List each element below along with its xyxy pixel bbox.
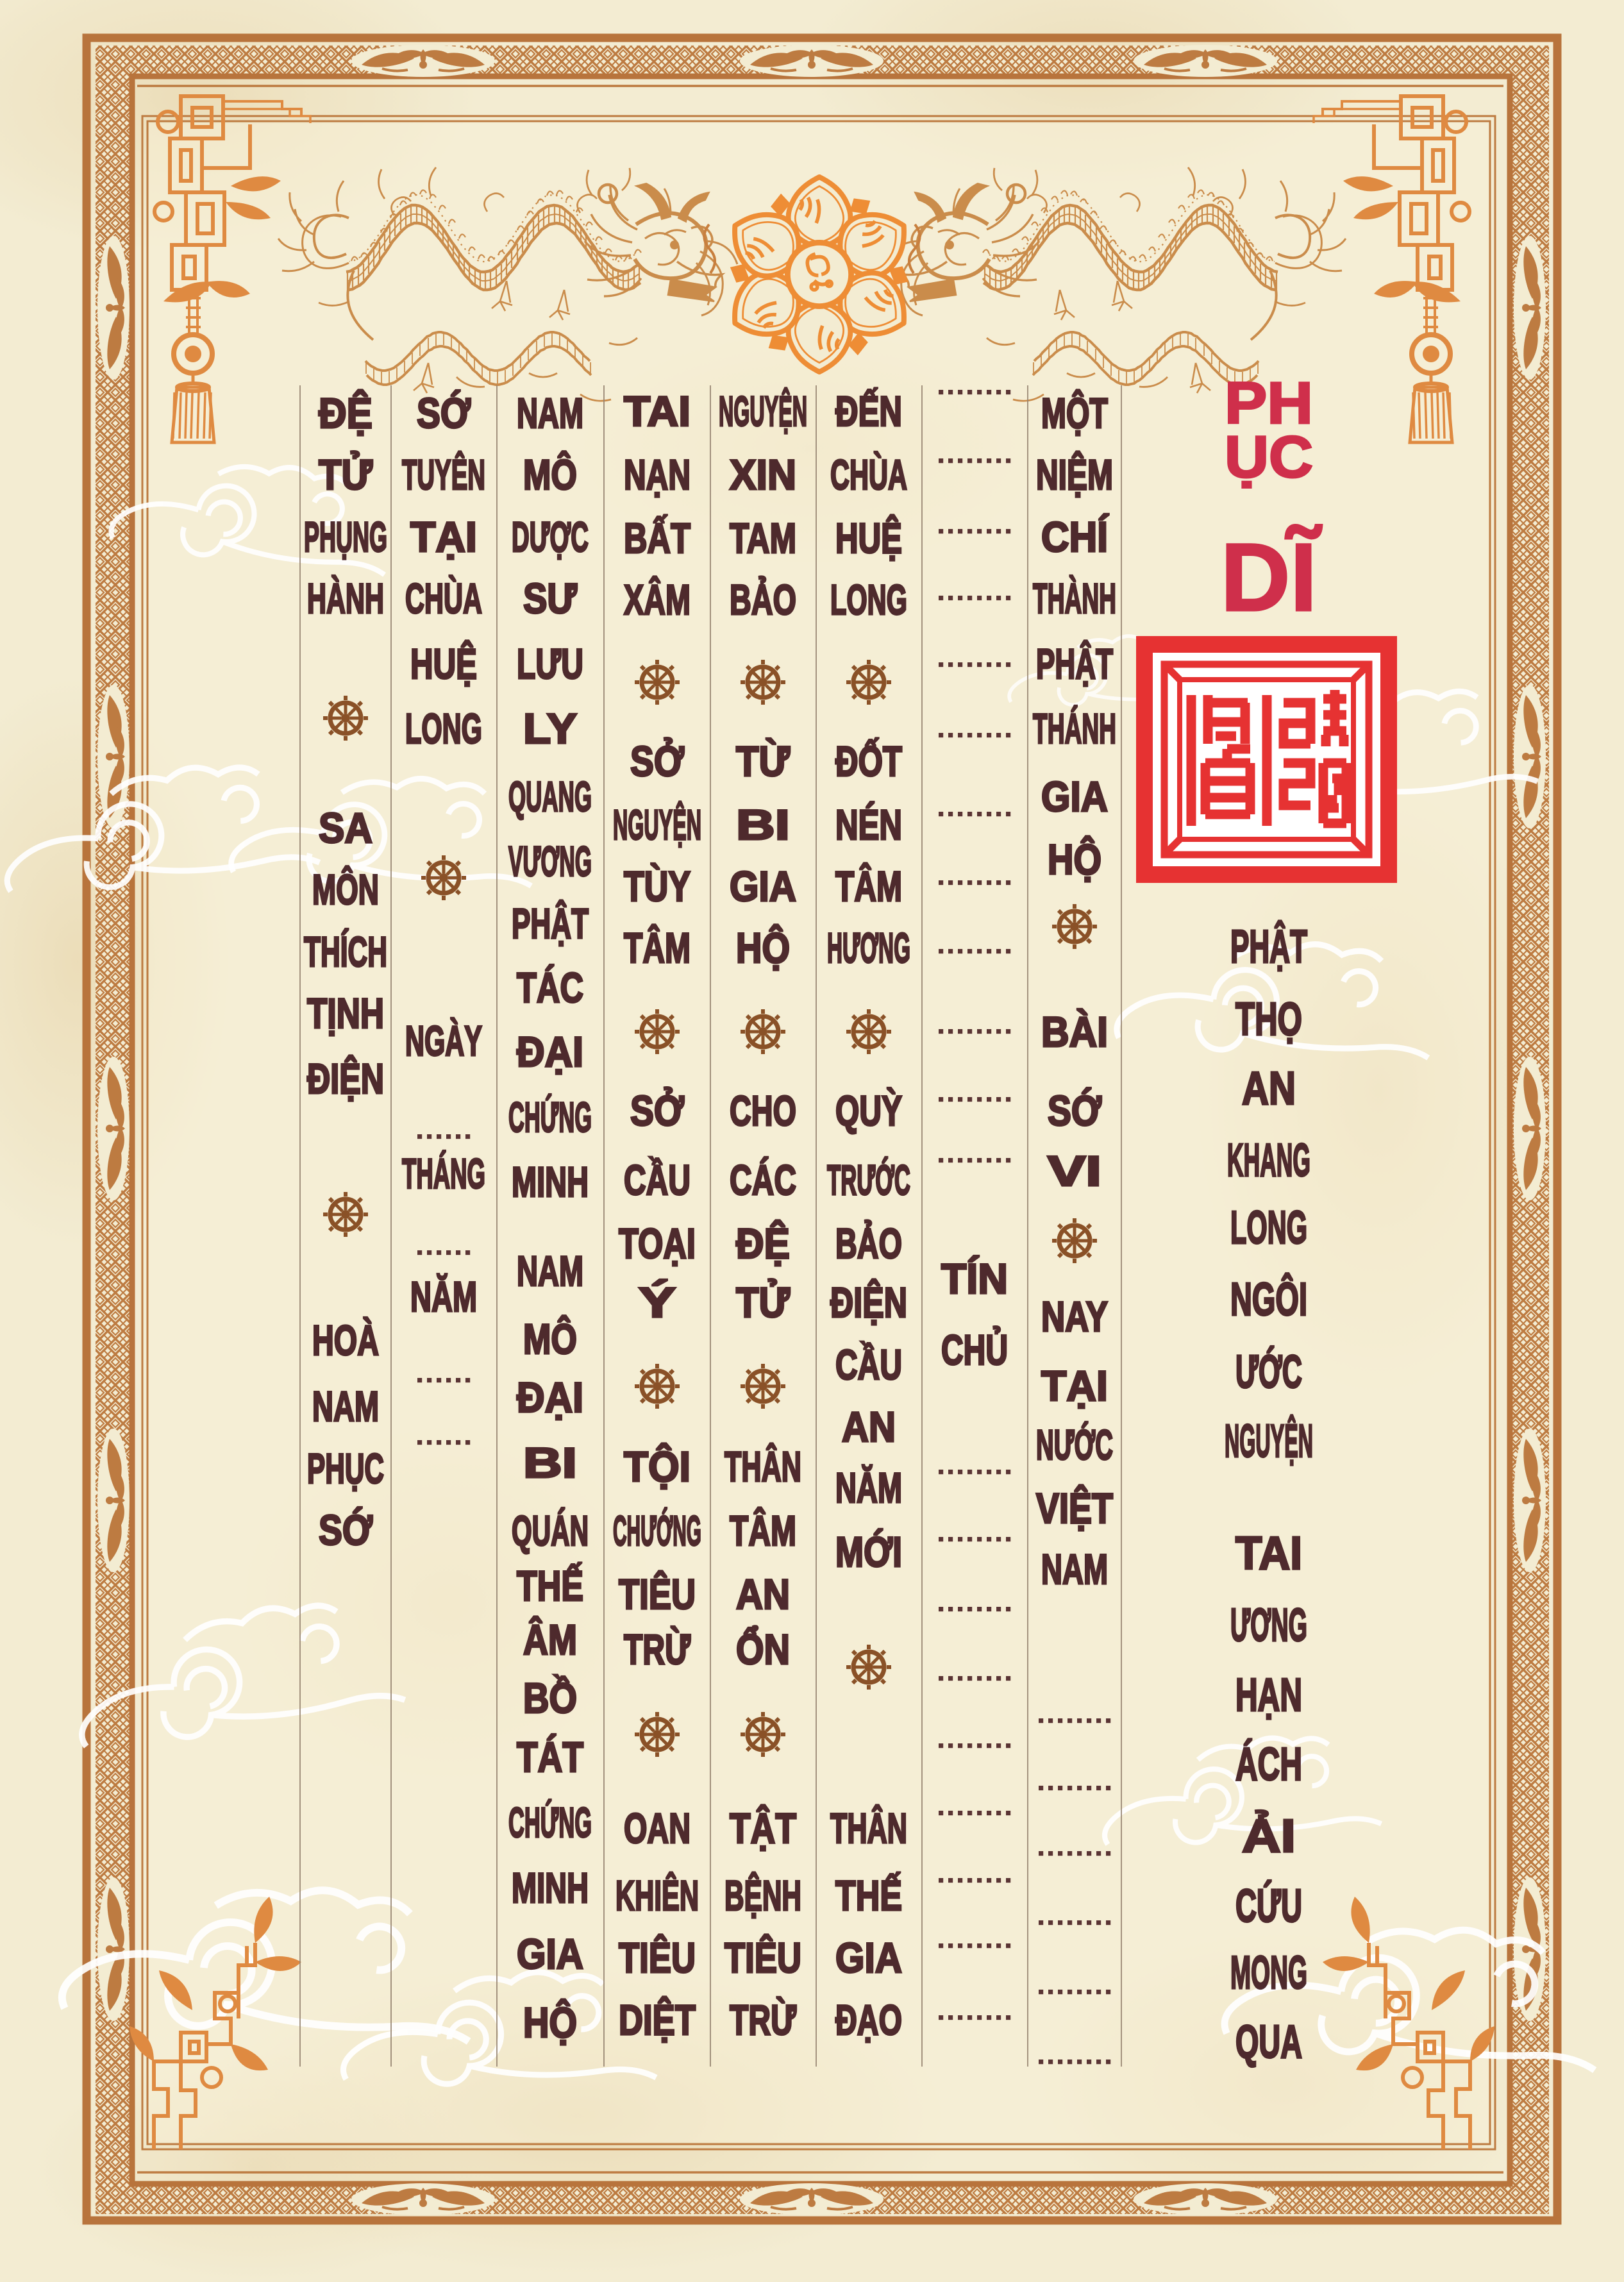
svg-text:ĐẠI: ĐẠI <box>517 1028 583 1075</box>
svg-text:HẠN: HẠN <box>1235 1670 1302 1721</box>
svg-text:NAY: NAY <box>1041 1293 1108 1340</box>
svg-text:MỚI: MỚI <box>835 1528 902 1575</box>
svg-text:ÁCH: ÁCH <box>1235 1739 1302 1790</box>
svg-text:KHIÊN: KHIÊN <box>615 1872 699 1919</box>
svg-text:PHỤNG: PHỤNG <box>304 513 387 560</box>
svg-text:BẢO: BẢO <box>730 576 796 623</box>
svg-text:SƯ: SƯ <box>523 575 577 622</box>
svg-text:TIÊU: TIÊU <box>619 1570 696 1618</box>
svg-text:ĐẾN: ĐẾN <box>835 387 902 435</box>
svg-text:NAM: NAM <box>1041 1545 1108 1593</box>
svg-text:KHANG: KHANG <box>1227 1135 1310 1186</box>
svg-text:HUỆ: HUỆ <box>410 640 477 687</box>
svg-text:BI: BI <box>736 801 790 848</box>
svg-text:ẢI: ẢI <box>1242 1810 1296 1862</box>
svg-text:CHÙA: CHÙA <box>405 575 482 622</box>
svg-text:SA: SA <box>319 804 373 852</box>
svg-text:CHÙA: CHÙA <box>830 451 907 498</box>
svg-text:ĐẠI: ĐẠI <box>517 1373 583 1421</box>
svg-text:CHO: CHO <box>730 1087 796 1134</box>
svg-text:GIA: GIA <box>517 1930 583 1977</box>
svg-text:NGUYỆN: NGUYỆN <box>719 387 807 435</box>
svg-text:ƯƠNG: ƯƠNG <box>1230 1600 1307 1651</box>
svg-text:TỬ: TỬ <box>736 1279 790 1326</box>
svg-text:LƯU: LƯU <box>517 640 583 687</box>
svg-text:TÂM: TÂM <box>624 924 691 971</box>
svg-text:BẤT: BẤT <box>624 514 691 562</box>
svg-text:TẠI: TẠI <box>410 513 477 560</box>
svg-text:XIN: XIN <box>730 451 796 498</box>
svg-text:NẠN: NẠN <box>624 451 691 498</box>
svg-text:CHƯỚNG: CHƯỚNG <box>613 1507 701 1554</box>
svg-text:TIÊU: TIÊU <box>619 1934 696 1981</box>
svg-text:TAI: TAI <box>1235 1528 1302 1579</box>
svg-text:AN: AN <box>736 1570 790 1618</box>
svg-text:ĐẠO: ĐẠO <box>835 1996 902 2043</box>
svg-text:THÂN: THÂN <box>830 1804 907 1852</box>
svg-text:TOẠI: TOẠI <box>619 1220 696 1267</box>
svg-text:NÉN: NÉN <box>835 801 902 848</box>
svg-text:SỞ: SỞ <box>630 1087 685 1134</box>
svg-text:CÁC: CÁC <box>730 1156 796 1204</box>
svg-text:OAN: OAN <box>624 1804 691 1852</box>
svg-text:TÂM: TÂM <box>730 1507 796 1554</box>
svg-text:QUANG: QUANG <box>508 773 592 820</box>
svg-text:GIA: GIA <box>835 1934 902 1981</box>
svg-text:LONG: LONG <box>830 576 907 623</box>
svg-text:TAI: TAI <box>624 387 691 435</box>
svg-text:LONG: LONG <box>405 705 482 752</box>
svg-text:TỘI: TỘI <box>624 1443 691 1490</box>
svg-text:NAM: NAM <box>312 1382 379 1430</box>
svg-text:SỚ: SỚ <box>417 389 471 437</box>
svg-text:CHÍ: CHÍ <box>1041 513 1109 560</box>
svg-text:SỞ: SỞ <box>630 737 685 785</box>
svg-text:HUỆ: HUỆ <box>835 514 902 562</box>
svg-text:BI: BI <box>523 1439 577 1486</box>
svg-text:HÀNH: HÀNH <box>307 575 384 622</box>
svg-text:THỌ: THỌ <box>1235 994 1302 1045</box>
svg-text:MÔ: MÔ <box>523 1315 577 1363</box>
svg-text:ỤC: ỤC <box>1225 424 1313 490</box>
svg-text:DƯỢC: DƯỢC <box>512 513 589 560</box>
svg-text:NGÀY: NGÀY <box>405 1017 482 1064</box>
svg-text:GIA: GIA <box>1041 773 1108 820</box>
svg-text:THÁNG: THÁNG <box>402 1150 485 1197</box>
svg-text:LY: LY <box>523 705 577 752</box>
svg-text:SỚ: SỚ <box>319 1506 373 1554</box>
svg-text:TRƯỚC: TRƯỚC <box>827 1156 910 1204</box>
svg-text:HƯƠNG: HƯƠNG <box>827 924 910 971</box>
svg-text:SỚ: SỚ <box>1048 1087 1102 1134</box>
svg-text:THẾ: THẾ <box>835 1872 902 1919</box>
svg-text:PHẬT: PHẬT <box>512 900 589 947</box>
svg-text:NAM: NAM <box>517 389 583 437</box>
svg-text:TỬ: TỬ <box>319 451 373 498</box>
svg-text:TÁC: TÁC <box>517 964 583 1011</box>
svg-text:BẢO: BẢO <box>835 1220 902 1267</box>
svg-text:NGUYỆN: NGUYỆN <box>1225 1415 1313 1467</box>
svg-text:Ý: Ý <box>639 1279 676 1326</box>
svg-text:BỆNH: BỆNH <box>724 1872 801 1919</box>
svg-text:TẬT: TẬT <box>730 1804 796 1852</box>
svg-text:ÂM: ÂM <box>523 1616 577 1663</box>
svg-text:CHỨNG: CHỨNG <box>508 1799 592 1846</box>
svg-text:CỨU: CỨU <box>1235 1880 1302 1932</box>
svg-text:THÁNH: THÁNH <box>1033 705 1116 752</box>
svg-text:PHẬT: PHẬT <box>1230 921 1307 973</box>
svg-text:NGÔI: NGÔI <box>1230 1273 1307 1325</box>
svg-text:AN: AN <box>1242 1063 1296 1114</box>
svg-text:PHỤC: PHỤC <box>307 1445 384 1492</box>
svg-text:THÂN: THÂN <box>724 1443 801 1490</box>
svg-text:ĐỆ: ĐỆ <box>319 389 373 437</box>
svg-text:VIỆT: VIỆT <box>1036 1484 1113 1532</box>
svg-text:CẦU: CẦU <box>624 1156 691 1204</box>
svg-text:THẾ: THẾ <box>517 1562 583 1609</box>
svg-text:TRỪ: TRỪ <box>730 1996 796 2043</box>
svg-text:ĐIỆN: ĐIỆN <box>307 1055 384 1102</box>
svg-text:MONG: MONG <box>1230 1947 1307 1999</box>
svg-text:NĂM: NĂM <box>835 1464 902 1511</box>
svg-text:MINH: MINH <box>512 1158 589 1205</box>
svg-text:HỘ: HỘ <box>523 1999 577 2046</box>
svg-text:HỘ: HỘ <box>1048 835 1101 883</box>
svg-text:DĨ: DĨ <box>1221 523 1322 631</box>
svg-text:ĐỐT: ĐỐT <box>835 737 902 785</box>
svg-text:TẠI: TẠI <box>1041 1362 1108 1409</box>
svg-text:BÀI: BÀI <box>1041 1008 1108 1055</box>
svg-text:MINH: MINH <box>512 1864 589 1911</box>
svg-text:GIA: GIA <box>730 862 796 910</box>
svg-text:CHỨNG: CHỨNG <box>508 1093 592 1141</box>
svg-text:TÁT: TÁT <box>517 1733 583 1781</box>
svg-text:HỘ: HỘ <box>736 924 790 971</box>
svg-text:TÙY: TÙY <box>624 862 691 910</box>
svg-text:LONG: LONG <box>1230 1202 1307 1254</box>
svg-text:TRỪ: TRỪ <box>624 1625 691 1673</box>
svg-text:THÍCH: THÍCH <box>304 928 387 975</box>
svg-text:NƯỚC: NƯỚC <box>1036 1421 1113 1468</box>
svg-text:TIÊU: TIÊU <box>724 1934 801 1981</box>
svg-text:QUỲ: QUỲ <box>835 1087 902 1134</box>
svg-text:NIỆM: NIỆM <box>1036 451 1113 498</box>
svg-text:ĐIỆN: ĐIỆN <box>830 1279 907 1326</box>
svg-text:HOÀ: HOÀ <box>312 1316 379 1364</box>
svg-text:TỊNH: TỊNH <box>307 989 384 1037</box>
svg-text:TAM: TAM <box>730 514 796 562</box>
svg-text:QUA: QUA <box>1235 2017 1302 2068</box>
svg-text:DIỆT: DIỆT <box>619 1996 696 2043</box>
svg-text:NAM: NAM <box>517 1247 583 1295</box>
svg-text:BỒ: BỒ <box>523 1674 577 1722</box>
svg-text:NĂM: NĂM <box>410 1273 477 1320</box>
svg-text:TÂM: TÂM <box>835 862 902 910</box>
svg-text:PHẬT: PHẬT <box>1036 640 1113 687</box>
svg-text:AN: AN <box>842 1403 896 1450</box>
svg-text:TUYÊN: TUYÊN <box>402 451 485 498</box>
svg-text:ĐỆ: ĐỆ <box>736 1220 790 1267</box>
svg-text:CHỦ: CHỦ <box>941 1326 1008 1373</box>
svg-text:ỔN: ỔN <box>736 1625 790 1673</box>
svg-text:TỪ: TỪ <box>736 737 790 785</box>
svg-text:QUÁN: QUÁN <box>512 1507 589 1554</box>
svg-text:NGUYỆN: NGUYỆN <box>613 801 701 848</box>
svg-text:ƯỚC: ƯỚC <box>1235 1346 1302 1398</box>
svg-text:TÍN: TÍN <box>941 1255 1008 1302</box>
svg-text:MỘT: MỘT <box>1041 389 1108 437</box>
svg-text:MÔ: MÔ <box>523 451 577 498</box>
svg-text:CẦU: CẦU <box>835 1341 902 1388</box>
svg-text:MÔN: MÔN <box>312 866 379 913</box>
svg-text:THÀNH: THÀNH <box>1033 575 1116 622</box>
svg-text:VƯƠNG: VƯƠNG <box>508 837 592 885</box>
svg-text:VI: VI <box>1048 1147 1101 1195</box>
svg-text:XÂM: XÂM <box>624 576 691 623</box>
